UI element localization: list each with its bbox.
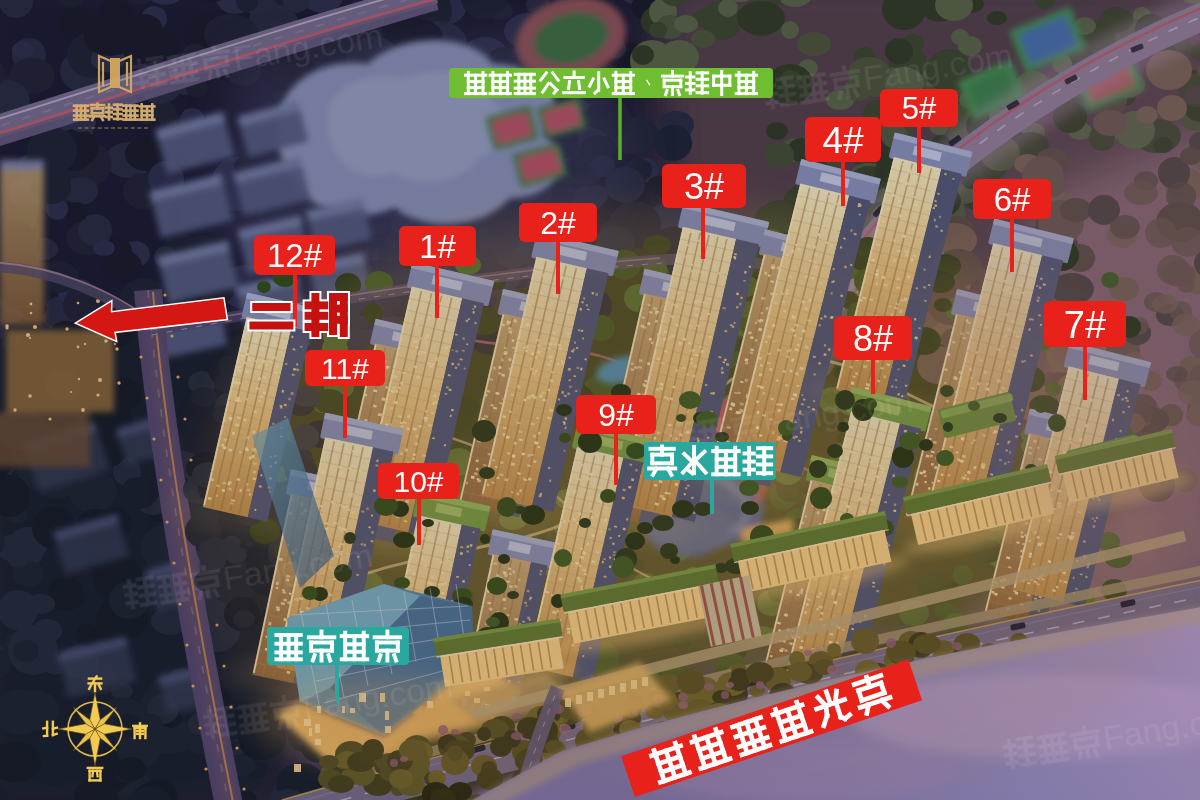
svg-text:6#: 6# [994, 181, 1031, 218]
svg-text:4#: 4# [822, 120, 864, 161]
svg-text:1#: 1# [419, 228, 456, 265]
svg-text:11#: 11# [321, 352, 369, 385]
svg-text:8#: 8# [853, 318, 893, 359]
svg-text:2#: 2# [540, 205, 576, 241]
svg-text:7#: 7# [1064, 304, 1106, 346]
svg-text:5#: 5# [902, 91, 937, 126]
svg-text:9#: 9# [598, 397, 634, 433]
svg-text:3#: 3# [684, 166, 724, 207]
svg-text:12#: 12# [267, 237, 323, 274]
svg-text:10#: 10# [393, 465, 443, 498]
